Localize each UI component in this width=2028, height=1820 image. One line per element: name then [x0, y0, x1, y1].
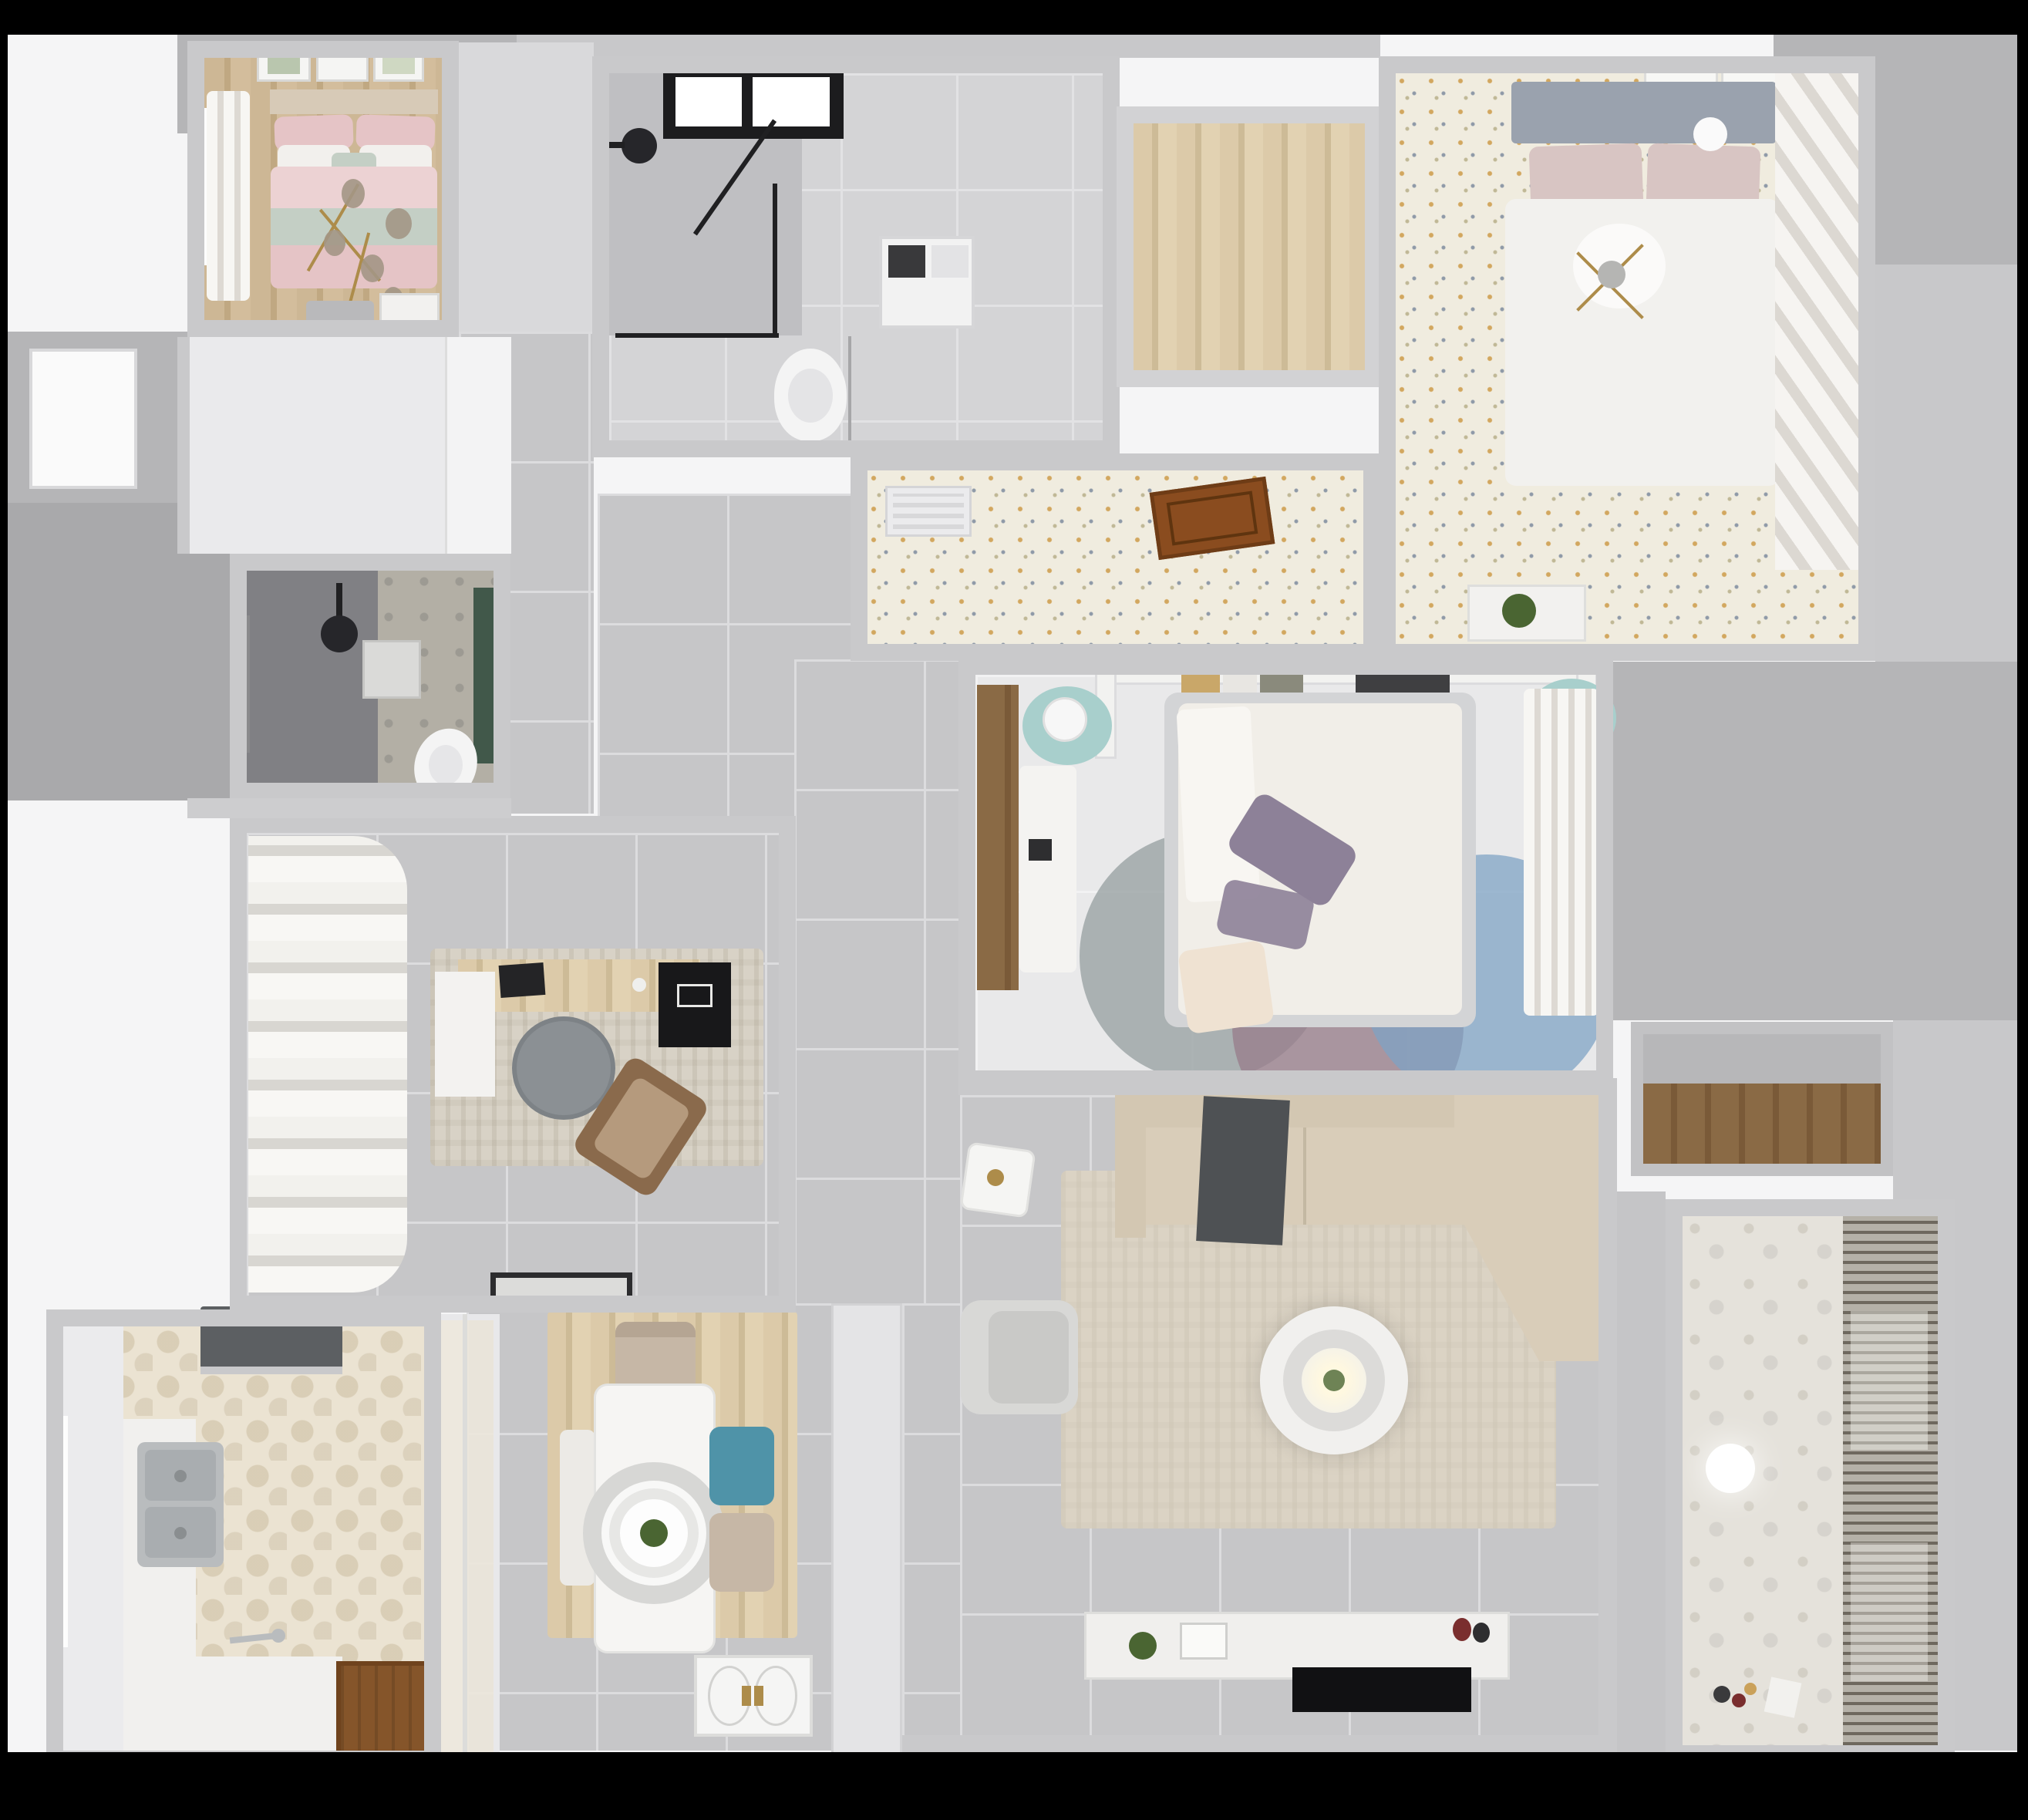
- console-pot: [1473, 1623, 1490, 1643]
- exterior-slab-right-lower: [1893, 1020, 2020, 1199]
- wall-below-bathroom2: [187, 798, 511, 818]
- hallway-floor-c: [794, 659, 960, 1303]
- study-walls: [230, 816, 796, 1313]
- sofa-throw-dark: [1196, 1096, 1290, 1245]
- closet-walls: [1117, 106, 1382, 387]
- bedroom2-walls: [1379, 56, 1875, 661]
- frame-left: [0, 0, 8, 1820]
- exterior-slab-bottom-right: [1955, 1199, 2020, 1751]
- exterior-band-top: [517, 35, 1380, 58]
- balcony-partition-wall: [1617, 1191, 1666, 1762]
- pendant-plant: [640, 1519, 668, 1547]
- living-wall-top: [958, 1078, 1615, 1095]
- balcony-walls: [1666, 1199, 1955, 1762]
- wall-left-inner-hall: [177, 337, 190, 554]
- bathroom1-walls: [592, 56, 1120, 457]
- bedroom1-walls: [187, 41, 459, 337]
- bedroom3-walls: [958, 658, 1613, 1087]
- sofa-seat: [1146, 1127, 1470, 1225]
- entry-door-handle: [754, 1686, 763, 1706]
- entry-door-handle: [742, 1686, 751, 1706]
- exterior-slab-mid-right: [1613, 662, 2020, 1020]
- niche-walls: [1631, 1022, 1893, 1176]
- glass-partition-mullion: [463, 1314, 467, 1766]
- dining-chair-back: [615, 1322, 696, 1337]
- coffee-table-plant: [1323, 1370, 1345, 1391]
- dining-chair-blue: [709, 1427, 774, 1505]
- inner-hall-closet: [445, 337, 511, 554]
- sofa-cushion-line: [1303, 1127, 1306, 1225]
- floor-plan-canvas: [0, 0, 2028, 1820]
- frame-top: [0, 0, 2028, 35]
- tv-screen: [1292, 1667, 1471, 1712]
- console-box: [1180, 1623, 1228, 1660]
- console-plant: [1129, 1632, 1157, 1660]
- exterior-door-left: [29, 349, 137, 489]
- side-table-decor: [987, 1169, 1004, 1186]
- frame-right: [2017, 0, 2028, 1820]
- armchair-seat: [989, 1311, 1069, 1404]
- hall-column-white: [831, 1303, 902, 1768]
- living-wall-right: [1598, 1078, 1617, 1768]
- frame-bottom: [0, 1752, 2028, 1820]
- sofa-arm: [1115, 1095, 1146, 1238]
- bathroom2-walls: [230, 554, 510, 800]
- console-pot: [1453, 1618, 1471, 1641]
- hallway-upper-walls: [851, 453, 1380, 661]
- living-floor-ext: [902, 1303, 960, 1751]
- kitchen-walls: [46, 1309, 441, 1768]
- dining-chair-beige: [709, 1513, 774, 1592]
- exterior-slab-right: [1875, 265, 2020, 662]
- service-shaft: [459, 42, 594, 332]
